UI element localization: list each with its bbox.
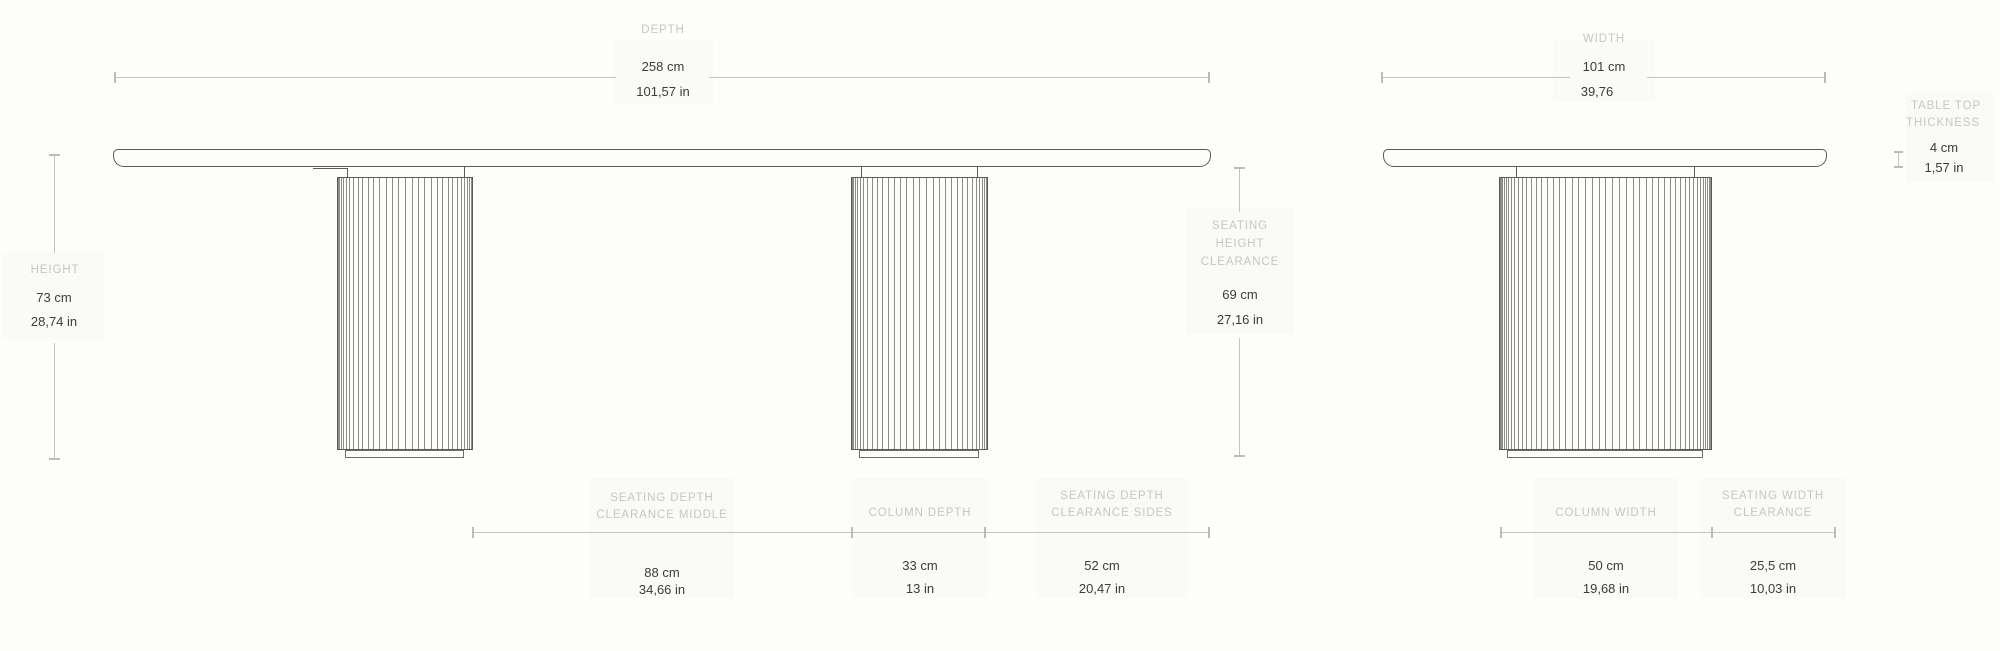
column-width-value-in: 19,68 in [1583,582,1629,595]
seating-depth-sides-label-2: CLEARANCE SIDES [1051,507,1173,519]
seating-height-clearance-label-1: SEATING [1212,220,1268,232]
pedestal-column-1 [337,177,473,450]
seating-height-dim-tick-top [1234,167,1245,169]
front-bottom-tick-2 [1711,527,1713,538]
seating-width-clearance-value-in: 10,03 in [1750,582,1796,595]
depth-dim-line-left [115,77,616,78]
height-dim-tick-top [49,154,60,156]
column2-base [859,450,979,458]
front-bottom-tick-1 [1500,527,1502,538]
table-dimensions-diagram: DEPTH 258 cm 101,57 in HEIGHT 73 cm 28,7… [0,0,2000,651]
front-column-mount-line-right [1694,167,1695,177]
height-dim-tick-bottom [49,458,60,460]
seating-height-clearance-value-in: 27,16 in [1217,313,1263,326]
column2-mount-line-right [977,167,978,177]
front-column-base [1507,450,1703,458]
seating-depth-sides-value-in: 20,47 in [1079,582,1125,595]
seating-depth-middle-label-1: SEATING DEPTH [610,492,714,504]
seating-width-clearance-label-2: CLEARANCE [1734,507,1812,519]
seating-depth-middle-label-2: CLEARANCE MIDDLE [596,509,727,521]
seating-height-clearance-label-3: CLEARANCE [1201,256,1279,268]
column-width-backdrop [1534,478,1678,598]
height-dim-line-top [54,155,55,253]
thickness-dim-tick-top [1894,151,1903,153]
width-value-in: 39,76 [1581,85,1614,98]
height-value-in: 28,74 in [31,315,77,328]
thickness-label-1: TABLE TOP [1911,100,1981,112]
tabletop-support-bracket [313,168,348,177]
column-depth-backdrop [852,478,988,598]
thickness-label-2: THICKNESS [1906,117,1980,129]
side-bottom-tick-2 [851,527,853,538]
column1-mount-line [464,167,465,177]
seating-height-clearance-label-2: HEIGHT [1216,238,1265,250]
column-depth-value-cm: 33 cm [902,559,937,572]
column-depth-label: COLUMN DEPTH [869,507,972,519]
column-width-value-cm: 50 cm [1588,559,1623,572]
depth-dim-line-right [709,77,1210,78]
seating-width-clearance-label-1: SEATING WIDTH [1722,490,1824,502]
column-width-label: COLUMN WIDTH [1555,507,1657,519]
side-bottom-tick-3 [984,527,986,538]
depth-label: DEPTH [641,24,684,36]
seating-depth-sides-value-cm: 52 cm [1084,559,1119,572]
thickness-dim-tick-bottom [1894,166,1903,168]
seating-depth-middle-value-cm: 88 cm [644,566,679,579]
seating-depth-middle-value-in: 34,66 in [639,583,685,596]
width-value-cm: 101 cm [1583,60,1626,73]
front-bottom-dim-line [1501,532,1836,533]
front-column-mount-line-left [1516,167,1517,177]
height-dim-line-bottom [54,343,55,460]
side-bottom-tick-4 [1208,527,1210,538]
column-depth-value-in: 13 in [906,582,934,595]
side-bottom-dim-line [473,532,1210,533]
depth-value-in: 101,57 in [636,85,690,98]
width-dim-line-left [1382,77,1570,78]
thickness-value-cm: 4 cm [1930,141,1958,154]
seating-height-dim-line-top [1239,168,1240,212]
height-label: HEIGHT [31,264,80,276]
pedestal-column-2 [851,177,988,450]
seating-width-clearance-value-cm: 25,5 cm [1750,559,1796,572]
depth-dim-tick-left [114,72,116,83]
thickness-value-in: 1,57 in [1924,161,1963,174]
front-pedestal-column [1499,177,1712,450]
width-dim-tick-right [1824,72,1826,83]
width-dim-line-right [1647,77,1826,78]
tabletop-front-outline [1383,149,1827,167]
seating-height-dim-tick-bottom [1234,455,1245,457]
width-dim-tick-left [1381,72,1383,83]
seating-height-dim-line-bottom [1239,338,1240,457]
width-label: WIDTH [1583,33,1625,45]
side-bottom-tick-1 [472,527,474,538]
column1-base [345,450,464,458]
tabletop-side-outline [113,149,1211,167]
column2-mount-line-left [861,167,862,177]
seating-depth-sides-label-1: SEATING DEPTH [1060,490,1164,502]
height-value-cm: 73 cm [36,291,71,304]
depth-dim-tick-right [1208,72,1210,83]
front-bottom-tick-3 [1834,527,1836,538]
seating-height-clearance-value-cm: 69 cm [1222,288,1257,301]
depth-value-cm: 258 cm [642,60,685,73]
